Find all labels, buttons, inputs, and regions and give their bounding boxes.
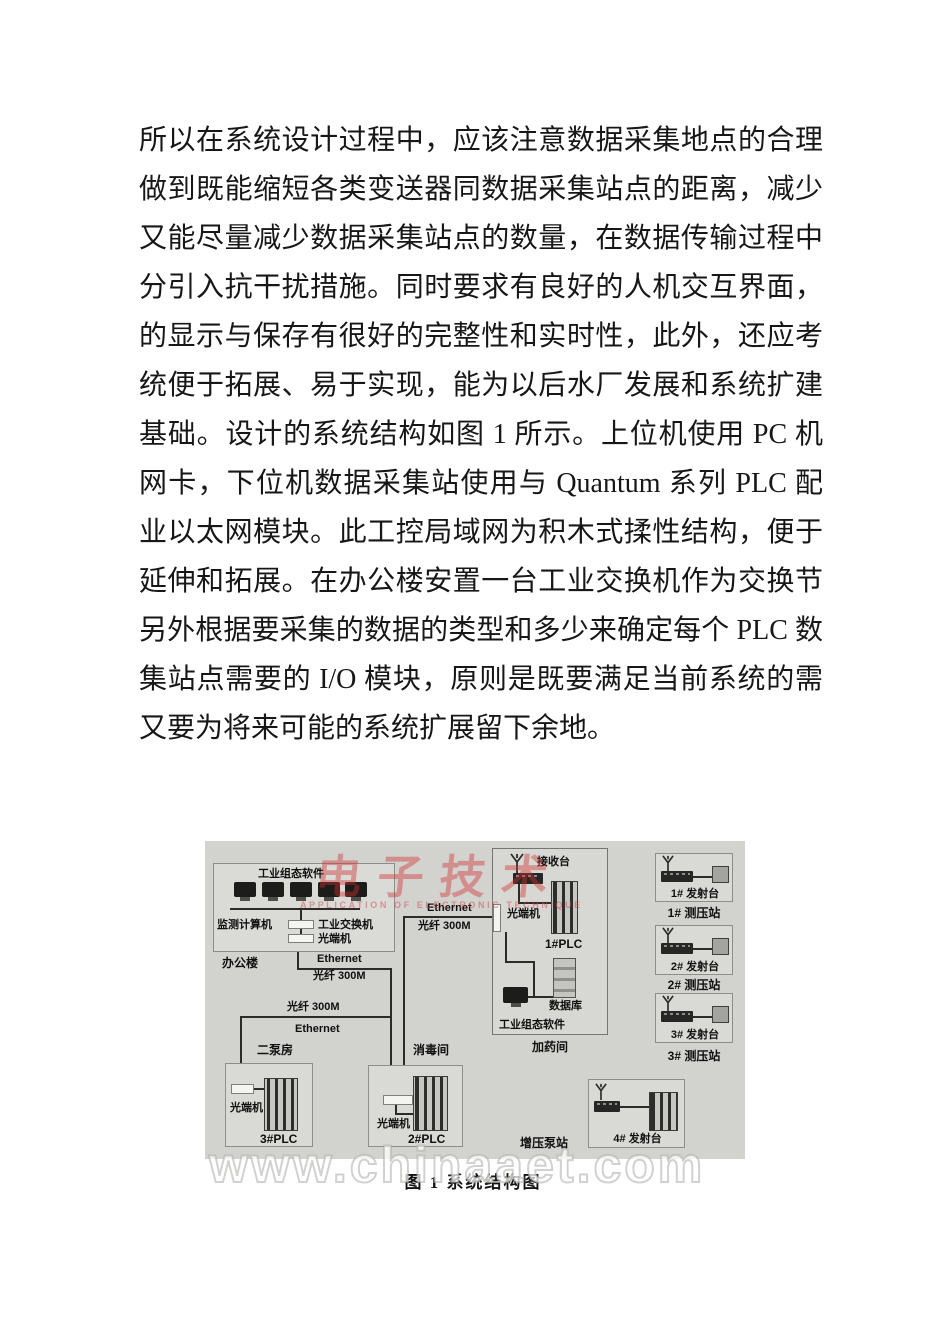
body-line: 分引入抗干扰措施。同时要求有良好的人机交互界面，数据 bbox=[139, 263, 823, 312]
body-line: 做到既能缩短各类变送器同数据采集站点的距离，减少干扰， bbox=[139, 165, 823, 214]
body-line: 又能尽量减少数据采集站点的数量，在数据传输过程中应充 bbox=[139, 214, 823, 263]
body-line: 所以在系统设计过程中，应该注意数据采集地点的合理选取， bbox=[139, 116, 823, 165]
dosing-room-label: 加药间 bbox=[532, 1041, 568, 1053]
radio-device-icon bbox=[661, 1011, 693, 1022]
station-3-box: 3# 发射台 bbox=[655, 993, 733, 1043]
body-line: 统便于拓展、易于实现，能为以后水厂发展和系统扩建打好 bbox=[139, 361, 823, 410]
body-line: 的显示与保存有很好的完整性和实时性，此外，还应考虑系 bbox=[139, 312, 823, 361]
office-software-label: 工业组态软件 bbox=[258, 868, 324, 880]
bus-to-switch-wire bbox=[300, 910, 302, 920]
station-wire bbox=[693, 876, 712, 878]
plc-rack bbox=[649, 1092, 678, 1131]
radio-device-icon bbox=[594, 1101, 620, 1112]
disinfect-modem-label: 光端机 bbox=[377, 1118, 410, 1130]
dosing-software-label: 工业组态软件 bbox=[499, 1019, 565, 1031]
body-line: 又要为将来可能的系统扩展留下余地。 bbox=[139, 704, 823, 753]
pump2-link-wire bbox=[240, 1016, 392, 1018]
fiber-modem-box bbox=[288, 934, 314, 943]
fiber-modem-box bbox=[383, 1095, 413, 1105]
office-switch-label: 工业交换机 bbox=[318, 919, 373, 931]
office-computers-label: 监测计算机 bbox=[217, 919, 272, 931]
site-watermark: www.chinaaet.com bbox=[209, 1136, 705, 1194]
disinfect-wire bbox=[395, 1113, 413, 1115]
database-label: 数据库 bbox=[549, 1000, 582, 1012]
body-line: 业以太网模块。此工控局域网为积木式揉性结构，便于网络 bbox=[139, 508, 823, 557]
monitor-icon bbox=[262, 882, 284, 897]
body-line: 网卡，下位机数据采集站使用与 Quantum 系列 PLC 配套的工 bbox=[139, 459, 823, 508]
station-1-label: 1# 测压站 bbox=[655, 907, 733, 919]
body-text: 所以在系统设计过程中，应该注意数据采集地点的合理选取， 做到既能缩短各类变送器同… bbox=[139, 116, 823, 753]
station-wire bbox=[693, 948, 712, 950]
ethernet-label: Ethernet bbox=[317, 953, 362, 965]
office-building-label: 办公楼 bbox=[222, 957, 258, 969]
pump2-modem-label: 光端机 bbox=[230, 1102, 263, 1114]
transmitter-4-wire bbox=[620, 1106, 649, 1108]
station-1-transmitter-label: 1# 发射台 bbox=[656, 888, 734, 900]
fiber-label: 光纤 300M bbox=[418, 920, 471, 932]
station-wire bbox=[693, 1016, 712, 1018]
document-page: 所以在系统设计过程中，应该注意数据采集地点的合理选取， 做到既能缩短各类变送器同… bbox=[0, 0, 950, 1344]
dosing-link-wire bbox=[403, 916, 493, 918]
plc-rack bbox=[413, 1076, 448, 1131]
pump2-wire bbox=[254, 1088, 264, 1090]
body-line: 基础。设计的系统结构如图 1 所示。上位机使用 PC 机自带的 bbox=[139, 410, 823, 459]
dosing-plc-label: 1#PLC bbox=[545, 938, 582, 950]
pump2-room-label: 二泵房 bbox=[257, 1044, 293, 1056]
station-1-box: 1# 发射台 bbox=[655, 853, 733, 902]
telemetry-unit-icon bbox=[712, 1006, 729, 1023]
body-line: 另外根据要采集的数据的类型和多少来确定每个 PLC 数据采 bbox=[139, 606, 823, 655]
red-logo-subtext-watermark: APPLICATION OF ELECTRONIC TECHNIQUE bbox=[300, 900, 583, 910]
station-3-transmitter-label: 3# 发射台 bbox=[656, 1029, 734, 1041]
pump2-box: 光端机 3#PLC bbox=[225, 1063, 313, 1147]
monitor-icon bbox=[503, 987, 528, 1003]
plc-rack bbox=[264, 1078, 298, 1131]
disinfect-box: 光端机 2#PLC bbox=[368, 1065, 463, 1147]
monitor-icon bbox=[290, 882, 312, 897]
disinfect-room-label: 消毒间 bbox=[413, 1044, 449, 1056]
station-2-box: 2# 发射台 bbox=[655, 925, 733, 975]
dosing-wire bbox=[505, 932, 507, 961]
radio-device-icon bbox=[661, 871, 693, 882]
station-2-label: 2# 测压站 bbox=[655, 979, 733, 991]
dosing-wire bbox=[505, 961, 535, 963]
fiber-label: 光纤 300M bbox=[287, 1001, 340, 1013]
body-line: 集站点需要的 I/O 模块，原则是既要满足当前系统的需要， bbox=[139, 655, 823, 704]
telemetry-unit-icon bbox=[712, 938, 729, 955]
station-3-label: 3# 测压站 bbox=[655, 1050, 733, 1062]
dosing-wire bbox=[533, 961, 535, 996]
telemetry-unit-icon bbox=[712, 866, 729, 883]
fiber-label: 光纤 300M bbox=[313, 970, 366, 982]
database-rack bbox=[553, 958, 576, 998]
fiber-modem-box bbox=[231, 1084, 254, 1094]
body-line: 延伸和拓展。在办公楼安置一台工业交换机作为交换节点。 bbox=[139, 557, 823, 606]
ethernet-label: Ethernet bbox=[295, 1023, 340, 1035]
monitor-icon bbox=[234, 882, 256, 897]
radio-device-icon bbox=[661, 943, 693, 954]
red-logo-watermark: 电子技术 bbox=[313, 841, 568, 907]
station-2-transmitter-label: 2# 发射台 bbox=[656, 961, 734, 973]
office-modem-label: 光端机 bbox=[318, 933, 351, 945]
industrial-switch-box bbox=[288, 920, 314, 929]
